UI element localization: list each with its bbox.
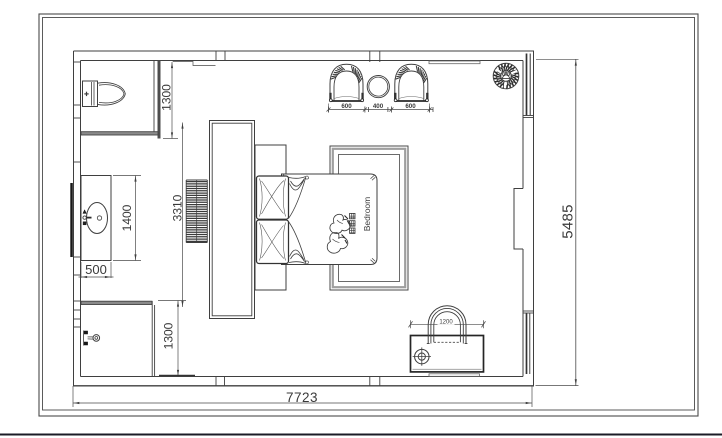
svg-text:1200: 1200 [439, 320, 453, 326]
svg-text:7723: 7723 [286, 390, 318, 405]
svg-text:5485: 5485 [560, 204, 577, 239]
svg-text:400: 400 [373, 103, 384, 110]
svg-text:500: 500 [85, 262, 107, 277]
svg-text:3310: 3310 [171, 194, 185, 221]
svg-text:1400: 1400 [120, 204, 134, 231]
svg-text:600: 600 [405, 103, 416, 110]
svg-text:Bedroom: Bedroom [362, 197, 372, 232]
svg-text:1300: 1300 [162, 322, 176, 349]
svg-text:600: 600 [341, 103, 352, 110]
svg-text:1300: 1300 [160, 84, 174, 111]
